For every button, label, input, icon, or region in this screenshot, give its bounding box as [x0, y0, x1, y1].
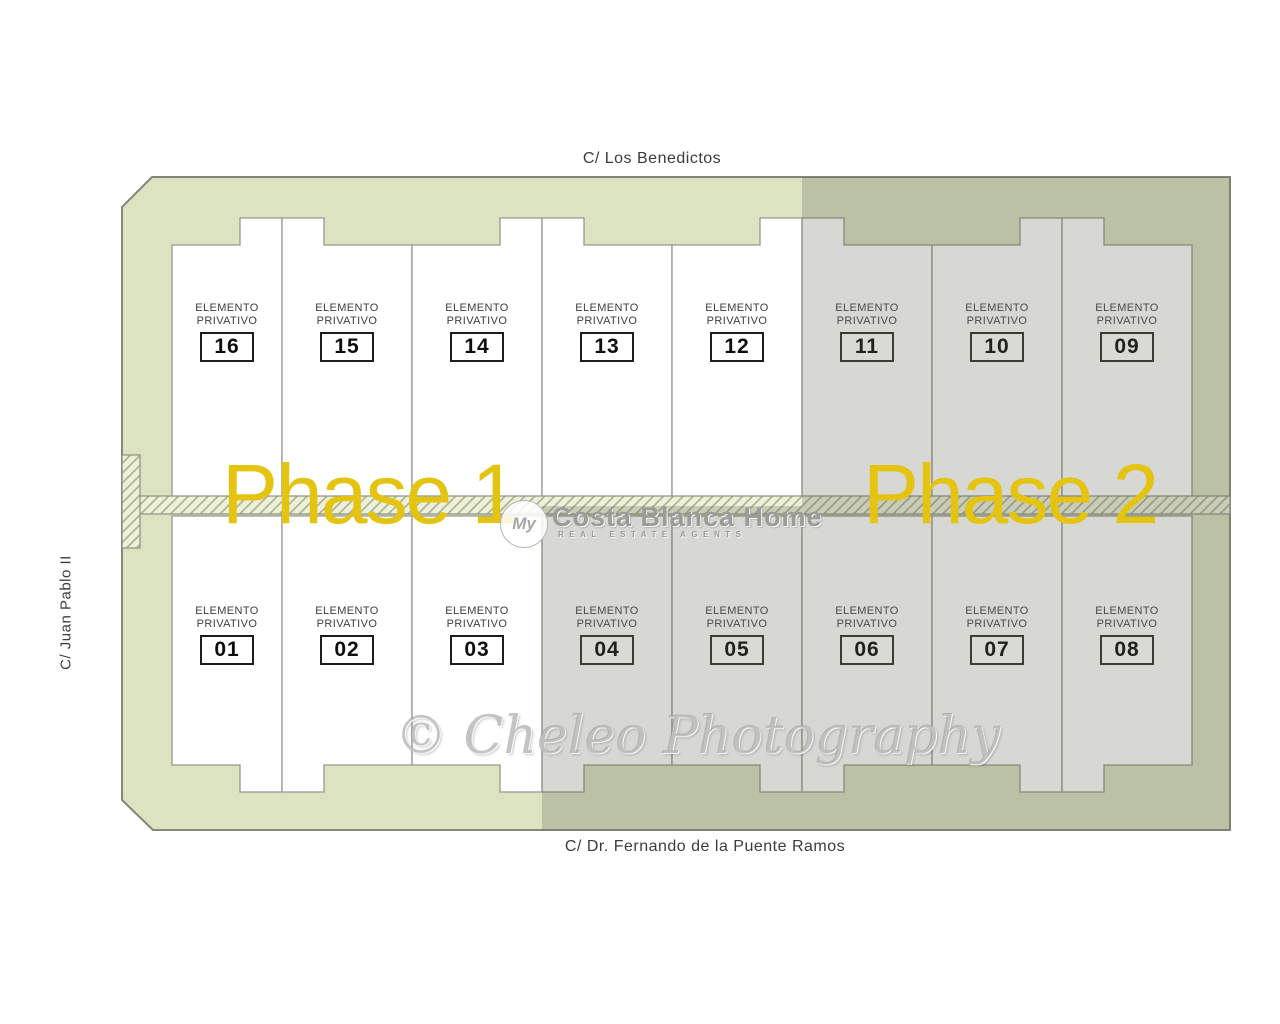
plot-label-line1: ELEMENTO: [287, 605, 407, 618]
plot-label-line2: PRIVATIVO: [167, 618, 287, 631]
agency-watermark-subtitle: REAL ESTATE AGENTS: [558, 530, 747, 539]
plot-label-line2: PRIVATIVO: [677, 618, 797, 631]
plot-label-line2: PRIVATIVO: [937, 315, 1057, 328]
plot-08-number: 08: [1100, 635, 1154, 665]
plot-12-number: 12: [710, 332, 764, 362]
plot-label-line1: ELEMENTO: [807, 605, 927, 618]
plot-label-line2: PRIVATIVO: [1067, 618, 1187, 631]
plot-label-line1: ELEMENTO: [677, 302, 797, 315]
plot-label-line1: ELEMENTO: [1067, 605, 1187, 618]
plot-label-line1: ELEMENTO: [807, 302, 927, 315]
site-plan-image: C/ Los Benedictos C/ Dr. Fernando de la …: [0, 0, 1280, 1024]
plot-label-line2: PRIVATIVO: [547, 618, 667, 631]
plot-09-number: 09: [1100, 332, 1154, 362]
plot-10-label: ELEMENTO PRIVATIVO 10: [937, 302, 1057, 362]
street-label-top: C/ Los Benedictos: [502, 150, 802, 168]
plot-04-label: ELEMENTO PRIVATIVO 04: [547, 605, 667, 665]
plot-01-number: 01: [200, 635, 254, 665]
plot-02-label: ELEMENTO PRIVATIVO 02: [287, 605, 407, 665]
plot-07-label: ELEMENTO PRIVATIVO 07: [937, 605, 1057, 665]
plot-label-line1: ELEMENTO: [417, 302, 537, 315]
side-entrance: [122, 455, 140, 548]
plot-label-line2: PRIVATIVO: [417, 618, 537, 631]
plot-label-line1: ELEMENTO: [677, 605, 797, 618]
plot-label-line1: ELEMENTO: [167, 302, 287, 315]
plot-16-number: 16: [200, 332, 254, 362]
plot-14-number: 14: [450, 332, 504, 362]
plot-02-number: 02: [320, 635, 374, 665]
plot-label-line2: PRIVATIVO: [677, 315, 797, 328]
plot-07-number: 07: [970, 635, 1024, 665]
plot-label-line2: PRIVATIVO: [167, 315, 287, 328]
plot-label-line1: ELEMENTO: [937, 302, 1057, 315]
plot-label-line2: PRIVATIVO: [1067, 315, 1187, 328]
plot-06-number: 06: [840, 635, 894, 665]
plot-05-label: ELEMENTO PRIVATIVO 05: [677, 605, 797, 665]
plot-label-line1: ELEMENTO: [287, 302, 407, 315]
plot-label-line1: ELEMENTO: [547, 302, 667, 315]
plot-01-label: ELEMENTO PRIVATIVO 01: [167, 605, 287, 665]
plot-03-number: 03: [450, 635, 504, 665]
phase2-overlay-bottom: [542, 506, 1230, 830]
plot-11-label: ELEMENTO PRIVATIVO 11: [807, 302, 927, 362]
street-label-bottom: C/ Dr. Fernando de la Puente Ramos: [505, 838, 905, 856]
street-label-left: C/ Juan Pablo II: [58, 523, 75, 703]
plot-15-number: 15: [320, 332, 374, 362]
plot-label-line1: ELEMENTO: [167, 605, 287, 618]
plot-08-label: ELEMENTO PRIVATIVO 08: [1067, 605, 1187, 665]
agency-logo-icon: My: [500, 500, 548, 548]
plot-16-label: ELEMENTO PRIVATIVO 16: [167, 302, 287, 362]
plot-05-number: 05: [710, 635, 764, 665]
plot-12-label: ELEMENTO PRIVATIVO 12: [677, 302, 797, 362]
plot-label-line1: ELEMENTO: [417, 605, 537, 618]
plot-09-label: ELEMENTO PRIVATIVO 09: [1067, 302, 1187, 362]
plot-label-line1: ELEMENTO: [1067, 302, 1187, 315]
plot-label-line2: PRIVATIVO: [287, 315, 407, 328]
plot-10-number: 10: [970, 332, 1024, 362]
plot-label-line2: PRIVATIVO: [937, 618, 1057, 631]
phase-2-caption: Phase 2: [863, 452, 1157, 536]
agency-watermark: My Costa Blanca Home REAL ESTATE AGENTS: [500, 498, 820, 548]
plot-label-line1: ELEMENTO: [547, 605, 667, 618]
plot-06-label: ELEMENTO PRIVATIVO 06: [807, 605, 927, 665]
photography-watermark: © Cheleo Photography: [395, 706, 905, 766]
plot-11-number: 11: [840, 332, 894, 362]
plot-14-label: ELEMENTO PRIVATIVO 14: [417, 302, 537, 362]
plot-13-label: ELEMENTO PRIVATIVO 13: [547, 302, 667, 362]
agency-watermark-title: Costa Blanca Home: [552, 502, 823, 533]
plot-label-line1: ELEMENTO: [937, 605, 1057, 618]
plot-04-number: 04: [580, 635, 634, 665]
plot-label-line2: PRIVATIVO: [807, 315, 927, 328]
plot-label-line2: PRIVATIVO: [417, 315, 537, 328]
plot-13-number: 13: [580, 332, 634, 362]
plot-label-line2: PRIVATIVO: [547, 315, 667, 328]
plot-label-line2: PRIVATIVO: [287, 618, 407, 631]
plot-03-label: ELEMENTO PRIVATIVO 03: [417, 605, 537, 665]
plot-15-label: ELEMENTO PRIVATIVO 15: [287, 302, 407, 362]
plot-label-line2: PRIVATIVO: [807, 618, 927, 631]
phase-1-caption: Phase 1: [222, 452, 516, 536]
